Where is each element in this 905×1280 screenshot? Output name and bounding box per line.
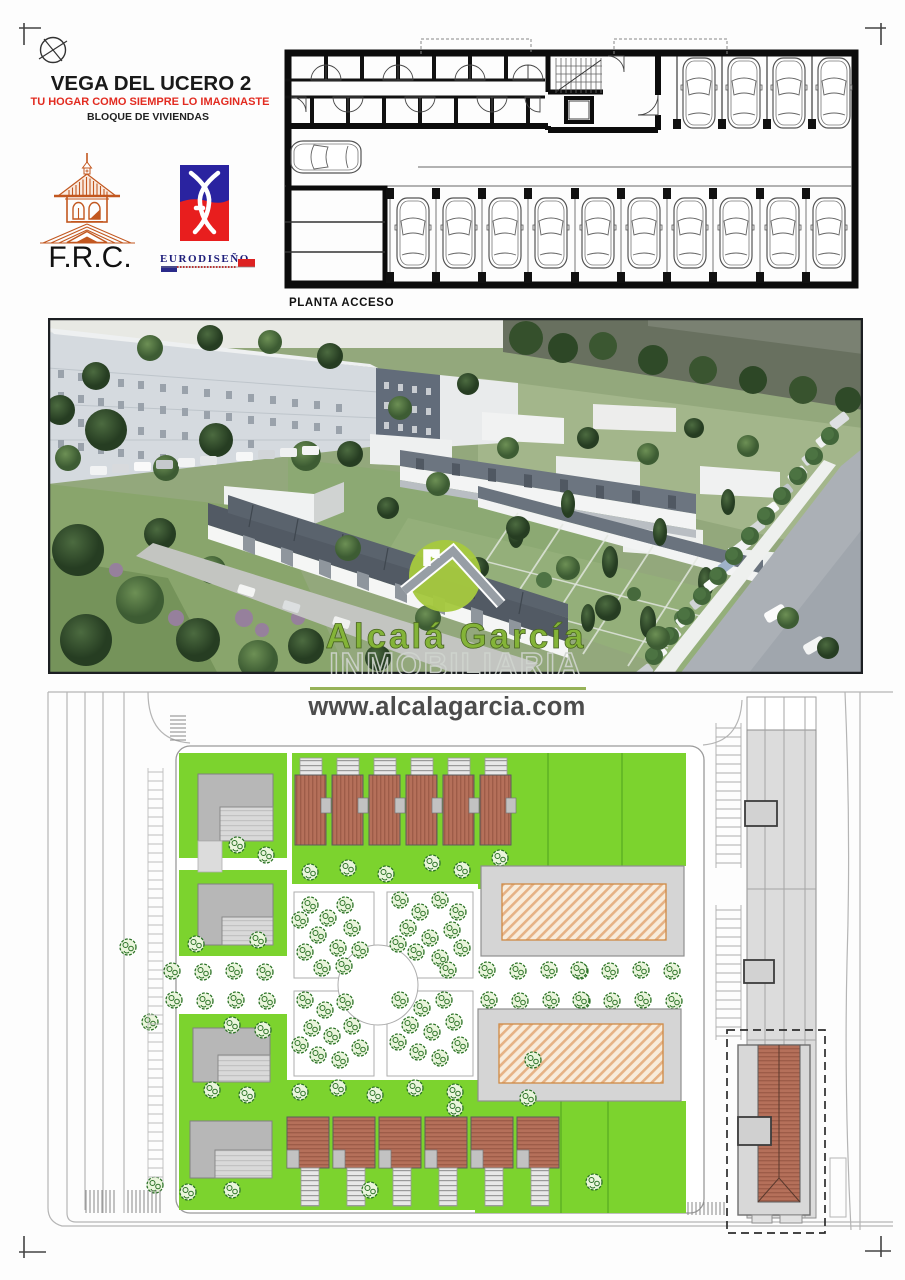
svg-text:EURODISEÑO: EURODISEÑO bbox=[160, 253, 250, 265]
svg-text:PLANTA ACCESO: PLANTA ACCESO bbox=[289, 297, 394, 309]
svg-text:INMOBILIARIA: INMOBILIARIA bbox=[329, 646, 582, 674]
